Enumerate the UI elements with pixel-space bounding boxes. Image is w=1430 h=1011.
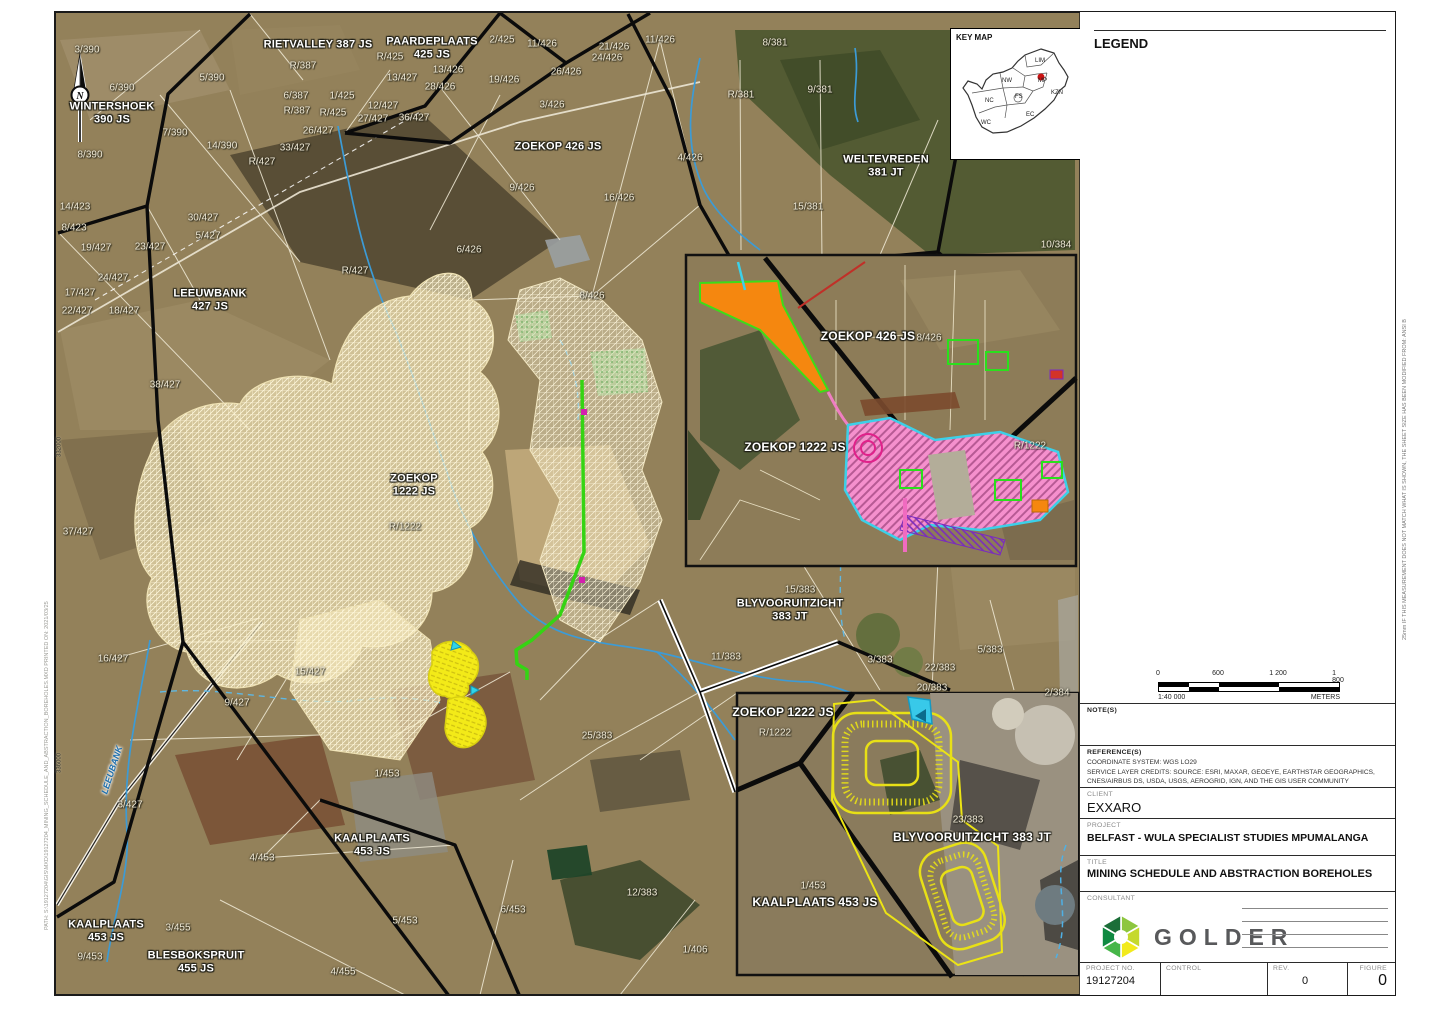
rev-label: REV. [1273,965,1289,972]
svg-text:N: N [75,91,84,102]
province-label: KZN [1051,90,1063,96]
title-label: TITLE [1087,859,1107,866]
province-label: WC [981,120,992,126]
key-map-title: KEY MAP [956,33,992,42]
province-label: MP [1038,78,1047,84]
province-label: NW [1002,78,1012,84]
project-no: 19127204 [1086,975,1135,987]
inset-discard-dump [737,693,1078,977]
notes-label: NOTE(S) [1087,707,1117,714]
project-no-label: PROJECT NO. [1086,965,1135,972]
print-path-note: PATH: S:\19127204\GIS\MXD\19127204_MININ… [44,601,50,930]
scale-bar: 06001 2001 800 1:40 000 METERS [1158,670,1340,706]
client-name: EXXARO [1087,800,1141,815]
sheet-size-note: 25mm IF THIS MEASUREMENT DOES NOT MATCH … [1402,319,1408,640]
rev-value: 0 [1302,975,1308,987]
scale-units: METERS [1311,694,1340,701]
reference-lines: COORDINATE SYSTEM: WGS LO29SERVICE LAYER… [1087,758,1387,787]
figure-value: 0 [1378,972,1387,990]
figure-label: FIGURE [1360,965,1387,972]
consultant-label: CONSULTANT [1087,895,1135,902]
project-name: BELFAST - WULA SPECIALIST STUDIES MPUMAL… [1087,832,1368,844]
map-sheet: { "key_map": { "title": "KEY MAP", "prov… [0,0,1430,1011]
references-label: REFERENCE(S) [1087,749,1142,756]
province-label: FS [1015,94,1023,100]
golder-hexagon-icon [1098,912,1144,962]
client-label: CLIENT [1087,791,1113,798]
scale-tick-label: 0 [1156,670,1160,677]
scale-tick-label: 600 [1212,670,1224,677]
province-label: EC [1026,112,1035,118]
reference-line: SERVICE LAYER CREDITS: SOURCE: ESRI, MAX… [1087,768,1387,778]
control-label: CONTROL [1166,965,1201,972]
key-map: KEY MAP LIMNWMPFSKZNNCECWC [950,28,1087,160]
province-label: NC [985,98,994,104]
right-panel: LEGEND Conveyor Alternative D PCD'sConve… [1080,12,1395,995]
consultant-logo: GOLDER [1098,912,1318,964]
province-label: LIM [1035,58,1045,64]
south-africa-outline: LIMNWMPFSKZNNCECWC [955,43,1082,155]
scale-ratio: 1:40 000 [1158,694,1185,701]
legend-title: LEGEND [1094,36,1148,51]
scale-tick-label: 1 200 [1269,670,1287,677]
inset-zoekop-infrastructure [686,255,1076,566]
project-label: PROJECT [1087,822,1121,829]
reference-line: COORDINATE SYSTEM: WGS LO29 [1087,758,1387,768]
reference-line: CNES/AIRBUS DS, USDA, USGS, AEROGRID, IG… [1087,777,1387,787]
map-title: MINING SCHEDULE AND ABSTRACTION BOREHOLE… [1087,868,1372,880]
